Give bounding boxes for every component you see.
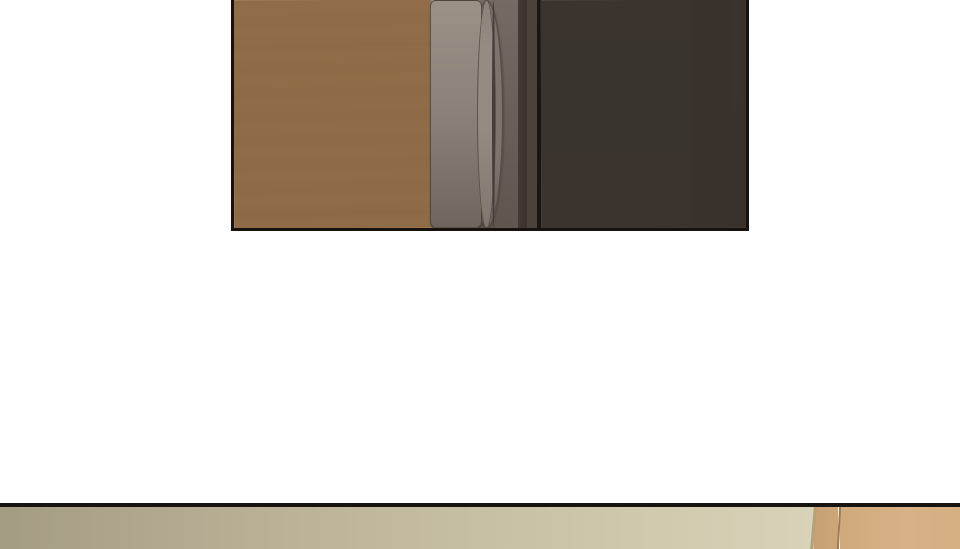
panel-room-top	[0, 503, 960, 549]
panel-door-closeup-content	[234, 0, 746, 228]
comic-page	[0, 0, 960, 549]
wood-wall-seam	[234, 0, 438, 228]
door-handle-lever	[430, 0, 482, 228]
room-door-face	[840, 507, 960, 549]
panel-gutter	[0, 231, 960, 503]
door-face-seam-upper	[689, 0, 746, 228]
room-door-edge	[814, 507, 838, 549]
room-wall	[0, 507, 814, 549]
door-edge	[527, 0, 537, 228]
door-edge-shadow	[518, 0, 527, 228]
panel-door-closeup	[231, 0, 749, 231]
door-handle-keyhole	[492, 0, 495, 228]
